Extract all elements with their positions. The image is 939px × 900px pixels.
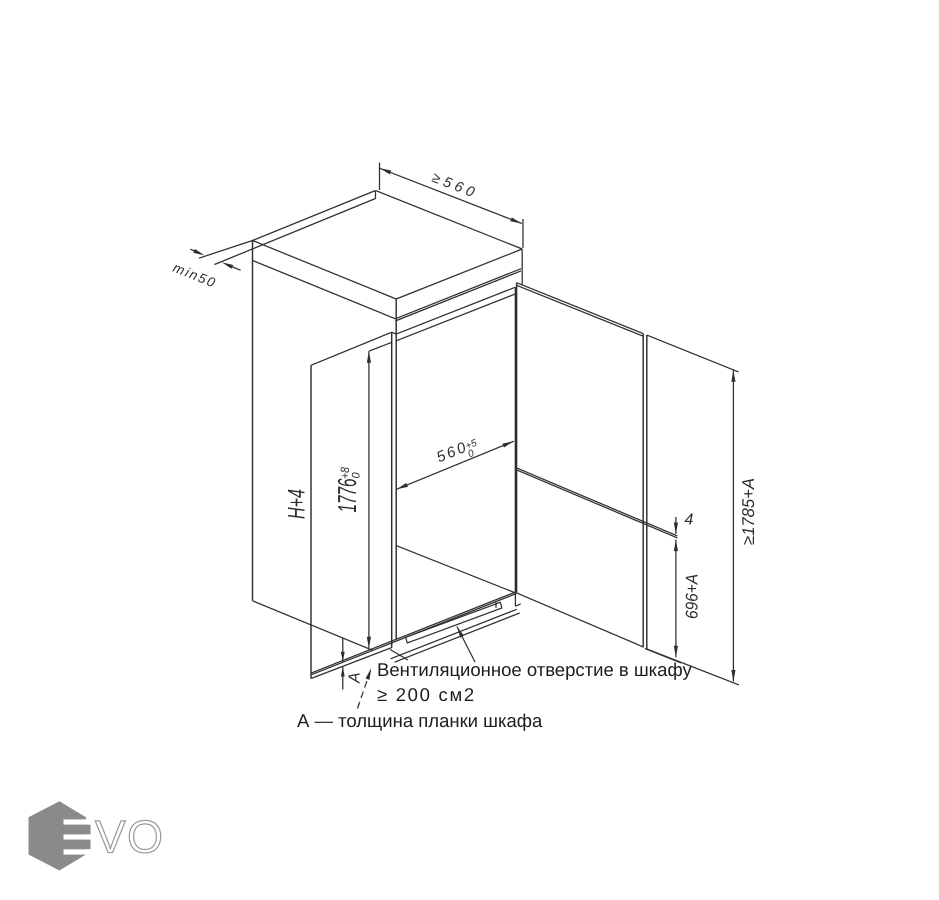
svg-text:1776: 1776 (332, 478, 362, 512)
svg-text:0: 0 (351, 472, 363, 479)
svg-text:Вентиляционное отверстие в шка: Вентиляционное отверстие в шкафу (377, 659, 692, 680)
svg-text:VO: VO (95, 811, 164, 863)
svg-text:≥ 200 см2: ≥ 200 см2 (377, 684, 476, 705)
svg-text:4: 4 (685, 512, 694, 529)
svg-text:A: A (347, 672, 364, 684)
svg-text:H+4: H+4 (284, 489, 311, 519)
svg-text:А — толщина планки шкафа: А — толщина планки шкафа (297, 710, 543, 731)
svg-text:696+A: 696+A (682, 574, 701, 619)
svg-text:≥1785+A: ≥1785+A (739, 478, 758, 545)
